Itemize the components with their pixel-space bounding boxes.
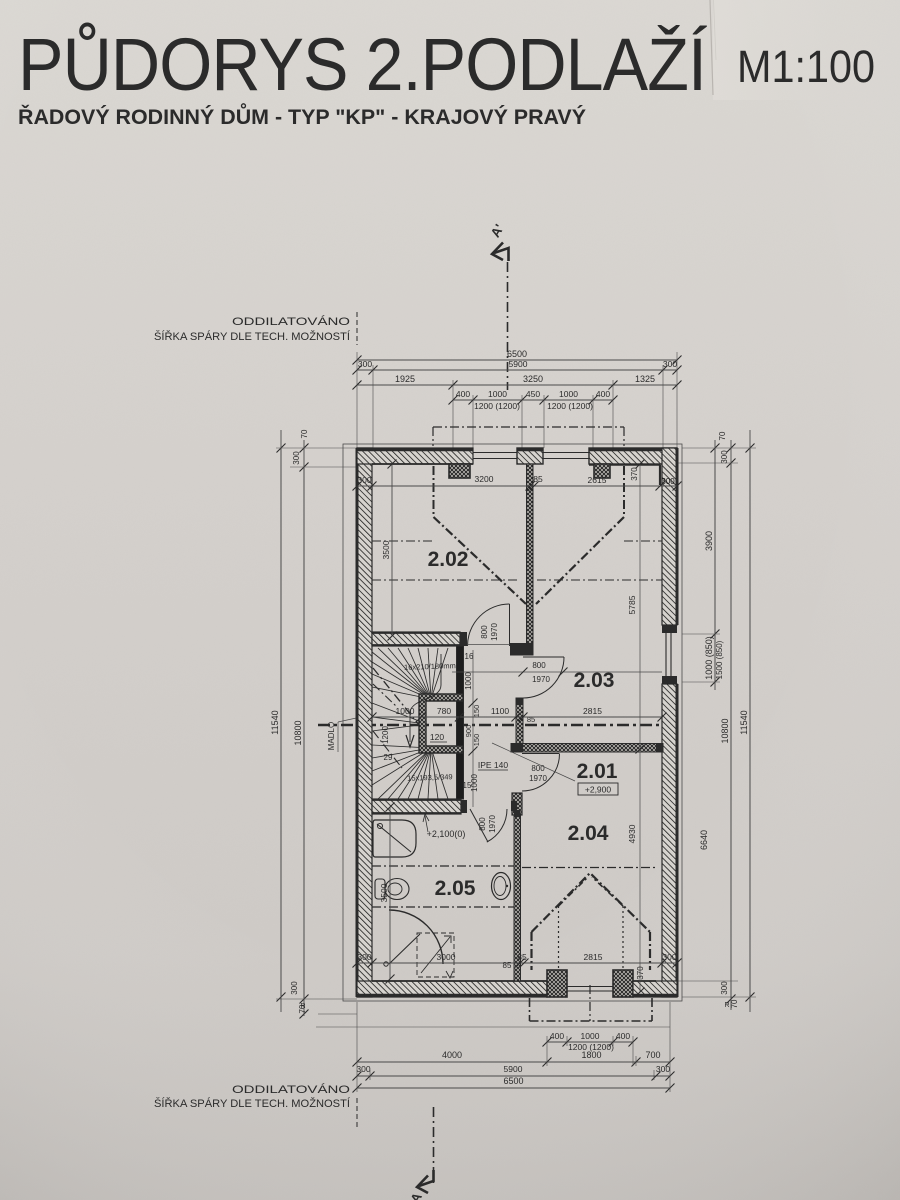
svg-text:3500: 3500 <box>381 540 391 559</box>
svg-text:800: 800 <box>532 661 546 670</box>
svg-text:300: 300 <box>292 451 301 465</box>
svg-text:1100: 1100 <box>491 706 510 716</box>
svg-text:370: 370 <box>636 966 645 980</box>
svg-text:1000: 1000 <box>559 389 578 399</box>
svg-text:1000: 1000 <box>581 1031 600 1041</box>
svg-text:29: 29 <box>384 753 393 762</box>
svg-text:300: 300 <box>662 952 676 962</box>
svg-text:700: 700 <box>645 1050 660 1060</box>
svg-text:300: 300 <box>356 1064 370 1074</box>
svg-text:800: 800 <box>480 625 489 639</box>
svg-text:10800: 10800 <box>293 720 303 745</box>
svg-text:85: 85 <box>533 474 543 484</box>
svg-text:3900: 3900 <box>704 531 714 551</box>
svg-text:120: 120 <box>430 732 444 742</box>
svg-text:2.01: 2.01 <box>577 760 618 783</box>
svg-text:1200 (1200): 1200 (1200) <box>474 401 520 411</box>
svg-text:3000: 3000 <box>437 952 456 962</box>
svg-text:16x210/180mm: 16x210/180mm <box>404 661 456 672</box>
svg-text:6500: 6500 <box>507 349 527 359</box>
svg-text:400: 400 <box>550 1031 564 1041</box>
svg-text:5900: 5900 <box>504 1064 523 1074</box>
svg-text:300: 300 <box>357 475 371 485</box>
svg-text:70: 70 <box>300 429 309 438</box>
svg-text:800: 800 <box>531 764 545 773</box>
svg-text:300: 300 <box>357 952 371 962</box>
svg-text:1200 (1200): 1200 (1200) <box>547 401 593 411</box>
svg-text:2.04: 2.04 <box>568 822 609 845</box>
svg-text:1500 (850): 1500 (850) <box>715 640 724 679</box>
svg-text:1000: 1000 <box>470 774 479 792</box>
svg-text:2.05: 2.05 <box>435 877 476 900</box>
svg-text:400: 400 <box>456 389 470 399</box>
svg-text:16: 16 <box>465 652 474 661</box>
svg-text:3250: 3250 <box>523 374 543 384</box>
svg-text:2815: 2815 <box>584 952 603 962</box>
svg-text:150: 150 <box>472 734 481 747</box>
svg-text:ŘADOVÝ RODINNÝ DŮM - TYP "KP": ŘADOVÝ RODINNÝ DŮM - TYP "KP" - KRAJOVÝ … <box>18 103 586 129</box>
svg-text:3200: 3200 <box>475 474 494 484</box>
svg-text:85: 85 <box>527 715 535 724</box>
svg-text:11540: 11540 <box>270 710 280 734</box>
svg-text:1925: 1925 <box>395 374 415 384</box>
svg-text:1200: 1200 <box>381 726 390 744</box>
svg-text:+2,100(0): +2,100(0) <box>427 829 466 839</box>
svg-text:2.03: 2.03 <box>574 669 615 692</box>
svg-text:2.02: 2.02 <box>428 548 469 571</box>
svg-text:85: 85 <box>503 961 512 970</box>
svg-text:2615: 2615 <box>588 475 607 485</box>
svg-text:11540: 11540 <box>739 710 749 734</box>
svg-text:300: 300 <box>720 981 729 995</box>
svg-text:4000: 4000 <box>442 1050 462 1060</box>
svg-text:450: 450 <box>526 389 540 399</box>
svg-text:10800: 10800 <box>720 718 730 743</box>
svg-text:70: 70 <box>718 431 727 440</box>
svg-text:6500: 6500 <box>503 1076 523 1086</box>
svg-text:6640: 6640 <box>699 830 709 850</box>
svg-text:300: 300 <box>290 981 299 995</box>
svg-text:3500: 3500 <box>379 883 389 902</box>
svg-text:1800: 1800 <box>581 1050 601 1060</box>
svg-text:1325: 1325 <box>635 374 655 384</box>
svg-text:ODDILATOVÁNO: ODDILATOVÁNO <box>232 315 351 328</box>
svg-text:5785: 5785 <box>627 595 637 614</box>
svg-text:85: 85 <box>517 952 527 962</box>
svg-text:+2,900: +2,900 <box>585 785 612 795</box>
svg-text:1000: 1000 <box>396 706 415 716</box>
svg-text:800: 800 <box>478 817 487 831</box>
svg-text:4930: 4930 <box>627 824 637 843</box>
svg-text:1000: 1000 <box>488 389 507 399</box>
svg-text:300: 300 <box>358 359 372 369</box>
svg-text:300: 300 <box>663 359 677 369</box>
svg-text:R: R <box>724 1002 729 1009</box>
svg-text:1970: 1970 <box>532 675 550 684</box>
svg-text:1970: 1970 <box>490 623 499 641</box>
svg-text:70: 70 <box>730 999 739 1008</box>
svg-text:ŠÍŘKA SPÁRY DLE TECH. MOŽNOSTÍ: ŠÍŘKA SPÁRY DLE TECH. MOŽNOSTÍ <box>154 330 351 343</box>
svg-text:5900: 5900 <box>509 359 528 369</box>
svg-text:400: 400 <box>616 1031 630 1041</box>
svg-text:M1:100: M1:100 <box>737 41 875 92</box>
svg-text:IPE 140: IPE 140 <box>478 760 509 770</box>
svg-text:300: 300 <box>656 1064 670 1074</box>
svg-text:1970: 1970 <box>488 815 497 833</box>
svg-text:1970: 1970 <box>529 774 547 783</box>
svg-text:R: R <box>300 1003 305 1010</box>
svg-text:370: 370 <box>630 467 639 481</box>
svg-text:ODDILATOVÁNO: ODDILATOVÁNO <box>232 1083 351 1096</box>
svg-text:15x193,5/349: 15x193,5/349 <box>407 772 453 783</box>
svg-text:150: 150 <box>472 705 481 718</box>
svg-text:400: 400 <box>596 389 610 399</box>
svg-text:2815: 2815 <box>583 706 602 716</box>
svg-text:1000 (850): 1000 (850) <box>704 636 714 680</box>
svg-text:ŠÍŘKA SPÁRY DLE TECH. MOŽNOSTÍ: ŠÍŘKA SPÁRY DLE TECH. MOŽNOSTÍ <box>154 1097 351 1110</box>
svg-text:780: 780 <box>437 706 451 716</box>
svg-text:300: 300 <box>661 477 675 486</box>
svg-text:PŮDORYS 2.PODLAŽÍ: PŮDORYS 2.PODLAŽÍ <box>18 22 707 106</box>
svg-text:1000: 1000 <box>464 672 473 690</box>
